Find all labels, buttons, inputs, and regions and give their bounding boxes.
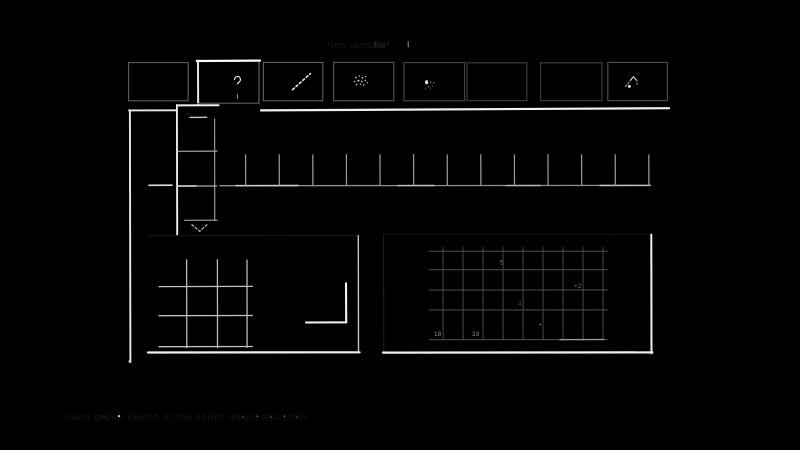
svg-text:New sketch: New sketch	[327, 40, 379, 51]
svg-text:file*: file*	[374, 40, 390, 51]
svg-text:5: 5	[500, 260, 504, 267]
svg-text:33: 33	[472, 331, 480, 338]
svg-text:18: 18	[434, 331, 442, 338]
svg-text:+2: +2	[574, 283, 582, 290]
svg-text:24: 24	[183, 110, 191, 117]
